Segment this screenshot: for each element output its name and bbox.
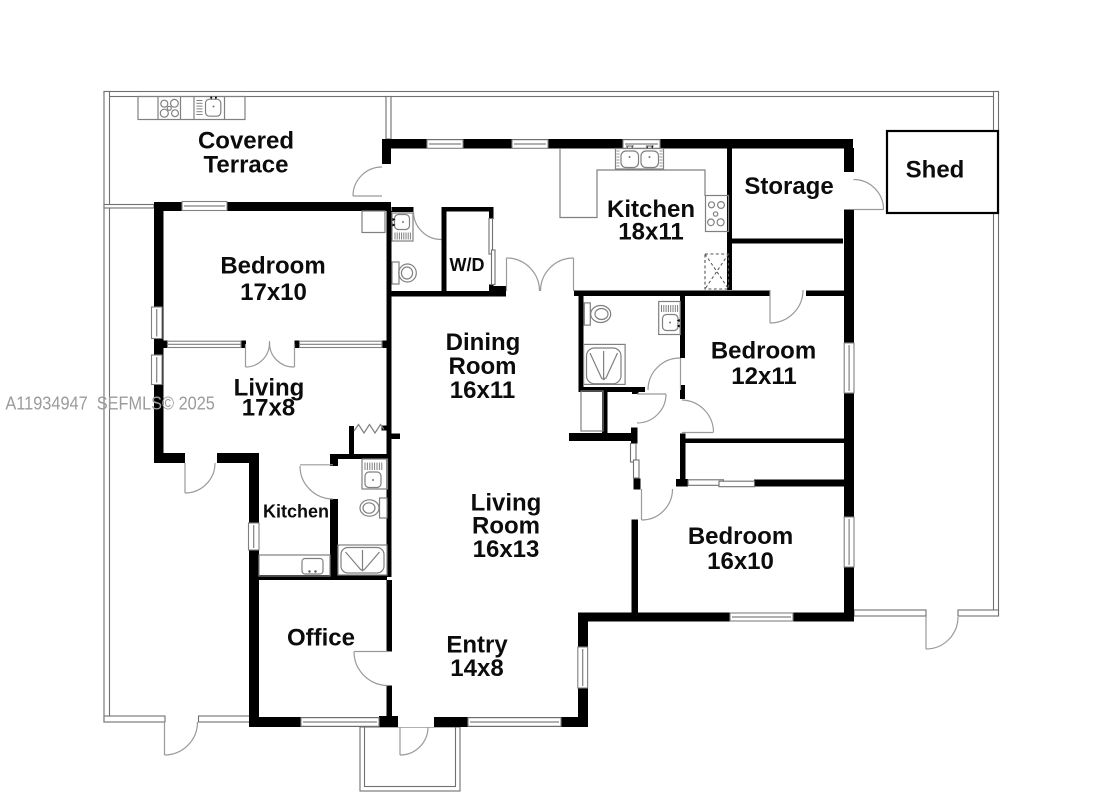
svg-text:Bedroom: Bedroom <box>711 338 816 365</box>
svg-text:16x11: 16x11 <box>450 377 515 404</box>
svg-text:Kitchen: Kitchen <box>263 502 329 522</box>
svg-text:Terrace: Terrace <box>204 152 289 179</box>
svg-text:Bedroom: Bedroom <box>688 523 793 550</box>
svg-text:17x10: 17x10 <box>240 279 307 306</box>
svg-text:16x13: 16x13 <box>473 536 540 563</box>
svg-text:12x11: 12x11 <box>731 363 796 390</box>
svg-text:Storage: Storage <box>744 173 833 200</box>
svg-text:Shed: Shed <box>906 157 965 184</box>
svg-text:A11934947 SEFMLS© 2025: A11934947 SEFMLS© 2025 <box>5 394 215 414</box>
svg-text:17x8: 17x8 <box>242 395 295 422</box>
svg-text:Bedroom: Bedroom <box>220 253 325 280</box>
svg-text:18x11: 18x11 <box>618 219 683 246</box>
svg-text:Office: Office <box>287 625 355 652</box>
svg-text:W/D: W/D <box>450 255 485 275</box>
svg-text:Room: Room <box>449 353 517 380</box>
svg-text:Covered: Covered <box>198 128 294 155</box>
svg-text:14x8: 14x8 <box>450 655 503 682</box>
svg-text:16x10: 16x10 <box>707 548 774 575</box>
svg-text:Dining: Dining <box>446 329 521 356</box>
